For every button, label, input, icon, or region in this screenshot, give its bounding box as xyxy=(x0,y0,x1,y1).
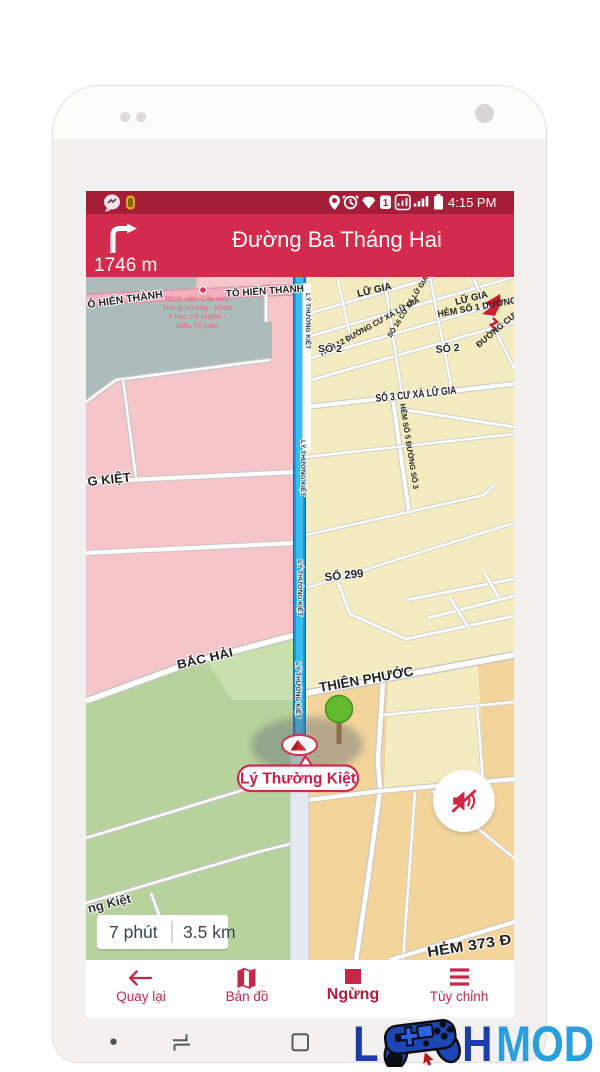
svg-text:4:15 PM: 4:15 PM xyxy=(448,195,496,210)
svg-text:SỐ 2: SỐ 2 xyxy=(318,341,342,355)
svg-text:MOD: MOD xyxy=(496,1016,594,1067)
svg-text:L: L xyxy=(353,1016,379,1067)
svg-text:Y học Cổ truyền -: Y học Cổ truyền - xyxy=(168,312,227,321)
svg-text:3.5 km: 3.5 km xyxy=(183,922,236,942)
svg-text:Bệnh viện Cấp cứu: Bệnh viện Cấp cứu xyxy=(165,294,229,303)
svg-text:Trưng Vương - Khoa: Trưng Vương - Khoa xyxy=(162,303,233,312)
svg-text:1: 1 xyxy=(383,198,389,209)
svg-text:Lý Thường Kiệt: Lý Thường Kiệt xyxy=(240,771,356,788)
svg-text:LÝ THƯỜNG KIỆT: LÝ THƯỜNG KIỆT xyxy=(299,440,308,496)
svg-text:LÝ THƯỜNG KIỆT: LÝ THƯỜNG KIỆT xyxy=(296,560,305,616)
svg-text:LÝ THƯỜNG KIỆT: LÝ THƯỜNG KIỆT xyxy=(304,293,313,349)
svg-text:7 phút: 7 phút xyxy=(109,922,158,942)
svg-text:Điều Trị Đau: Điều Trị Đau xyxy=(176,321,218,330)
svg-text:LÝ THƯỜNG KIỆT: LÝ THƯỜNG KIỆT xyxy=(294,662,303,718)
svg-text:H: H xyxy=(462,1016,492,1067)
